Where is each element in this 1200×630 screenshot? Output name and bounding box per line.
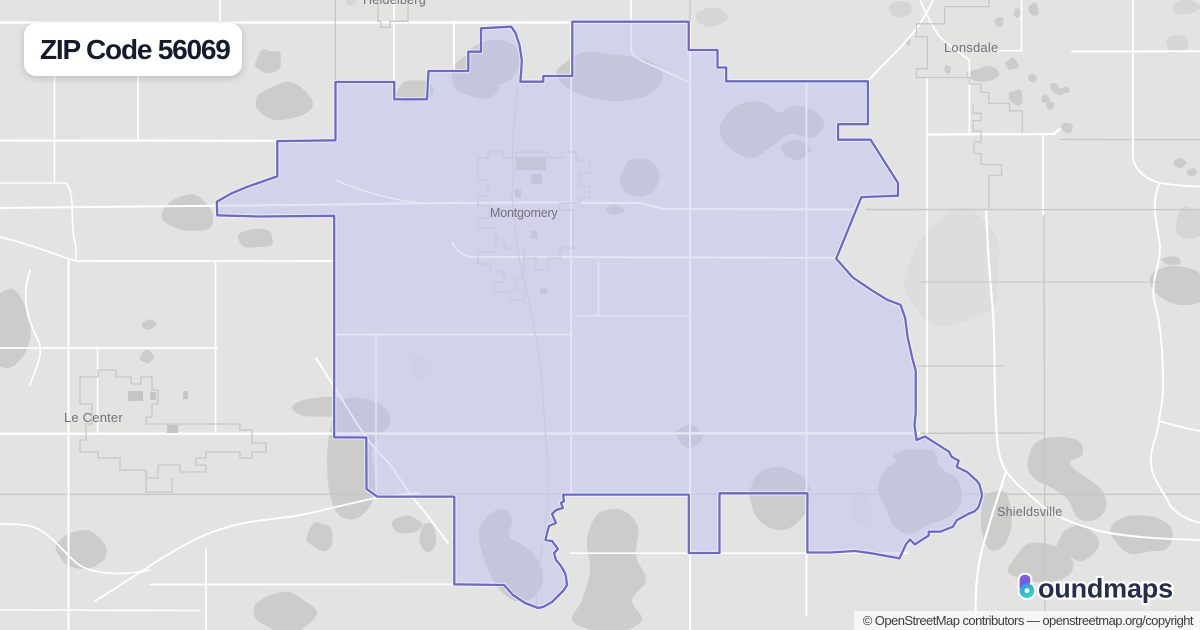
svg-text:oundmaps: oundmaps xyxy=(1038,574,1173,604)
